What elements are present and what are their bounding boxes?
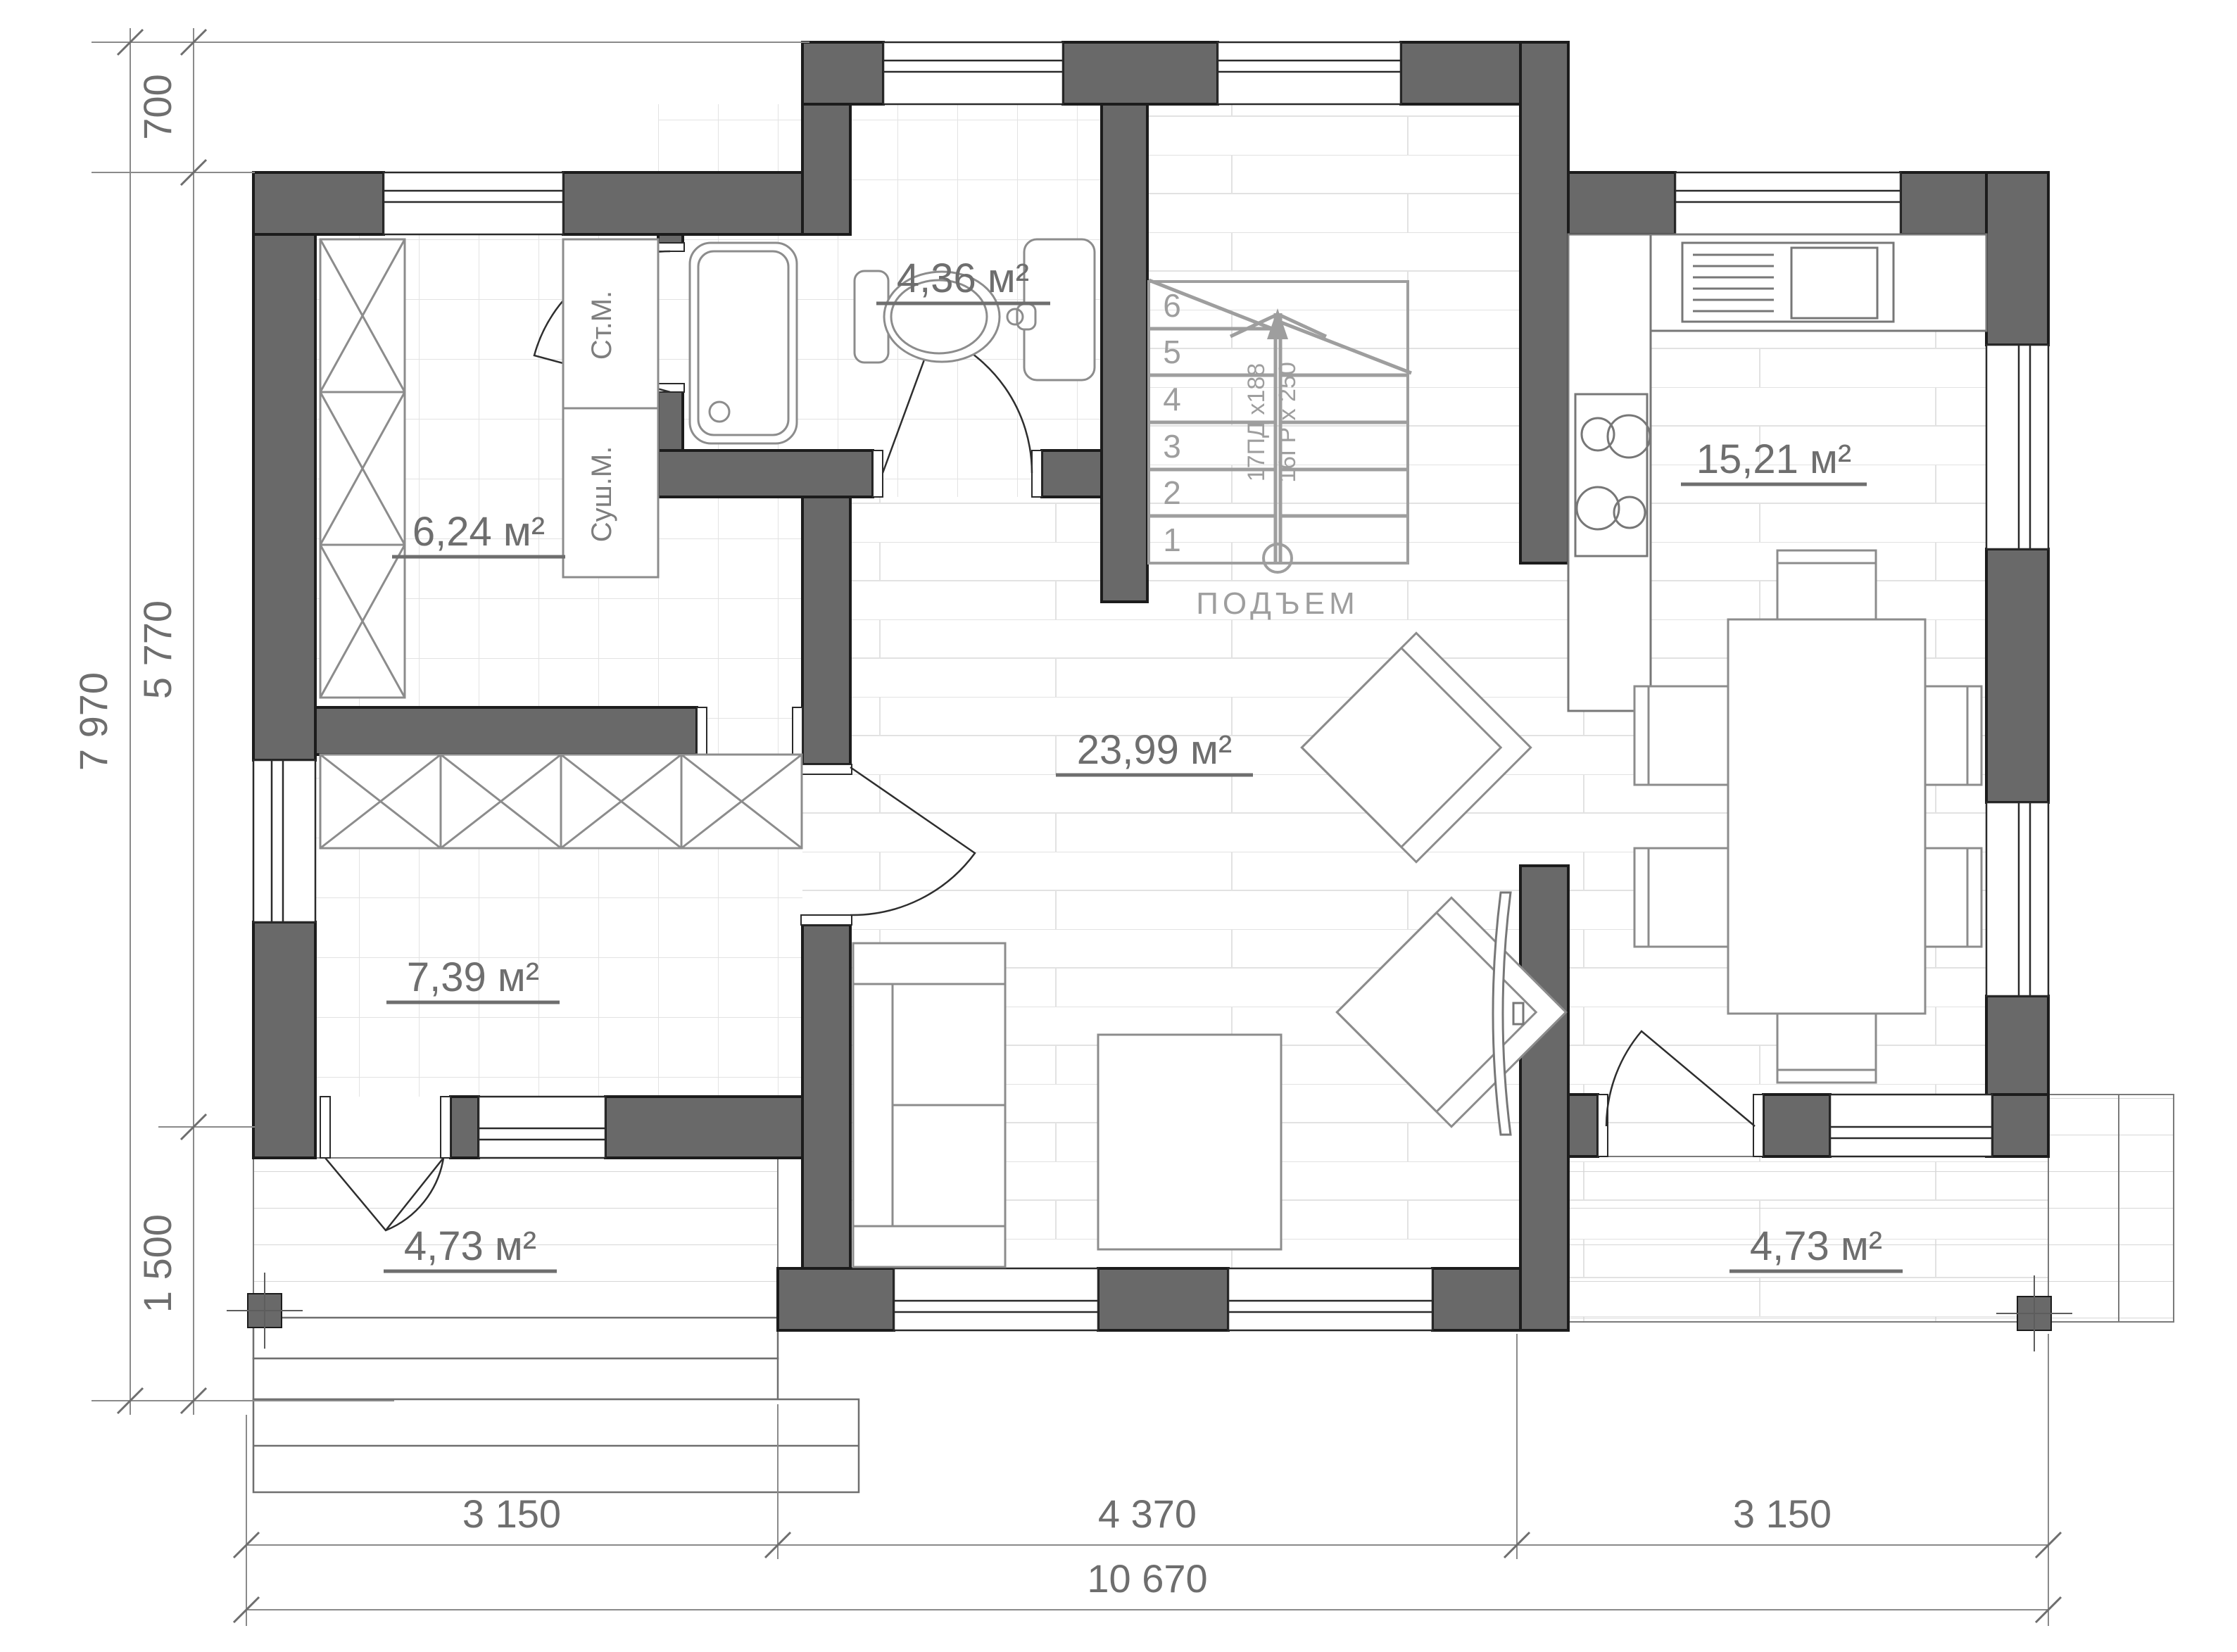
wall-block-top-c xyxy=(1401,42,1520,104)
stair-step-6: 6 xyxy=(1163,287,1181,324)
window-hall-left xyxy=(253,760,315,922)
dining-table xyxy=(1728,619,1925,1014)
dim-bottom-center: 4 370 xyxy=(1098,1492,1197,1536)
label-bathroom: 4,36 м² xyxy=(897,256,1029,301)
bathtub xyxy=(690,243,797,443)
window-stairs-top xyxy=(1218,42,1401,104)
stair-step-1: 1 xyxy=(1163,522,1181,558)
stair-note-treads: 16ГР х 250 xyxy=(1274,362,1301,483)
outside-patch-top-right xyxy=(1568,42,2048,172)
wall-block-top-a xyxy=(802,42,883,104)
dim-vertical-total: 7 970 xyxy=(71,672,115,771)
sofa xyxy=(853,943,1005,1267)
label-living: 23,99 м² xyxy=(1077,727,1232,773)
label-hall: 7,39 м² xyxy=(407,954,539,1000)
wall-left-lower xyxy=(253,922,315,1158)
wardrobe-laundry xyxy=(320,239,405,698)
wall-top-left-b xyxy=(563,172,802,234)
dim-bottom-total: 10 670 xyxy=(1087,1556,1207,1601)
floor-plan-drawing: 1 2 3 4 5 6 17ПД х188 16ГР х 250 ПОДЪЕМ … xyxy=(0,0,2237,1652)
label-terrace-right: 4,73 м² xyxy=(1750,1223,1882,1269)
wall-right-a xyxy=(1986,172,2048,345)
wall-spine-mid xyxy=(802,497,850,764)
dim-vertical-main: 5 770 xyxy=(135,600,179,699)
dim-bottom-left: 3 150 xyxy=(462,1492,561,1536)
stair-step-4: 4 xyxy=(1163,381,1181,417)
wall-block-top-b xyxy=(1063,42,1218,104)
wall-bathroom-south-a xyxy=(658,450,873,497)
window-bathroom-top xyxy=(883,42,1063,104)
wall-dining-south-c xyxy=(1992,1095,2048,1156)
window-dining-right-2 xyxy=(1986,802,2048,996)
wall-living-right-stub xyxy=(1520,866,1568,1330)
wall-top-left-a xyxy=(253,172,384,234)
floor-plan-page: 1 2 3 4 5 6 17ПД х188 16ГР х 250 ПОДЪЕМ … xyxy=(0,0,2237,1652)
label-laundry: 6,24 м² xyxy=(412,509,545,555)
wall-hall-south-a xyxy=(450,1097,479,1158)
wall-bathroom-right xyxy=(1102,104,1147,602)
wall-kitchen-top-a xyxy=(1568,172,1675,234)
label-kitchen: 15,21 м² xyxy=(1696,436,1851,482)
wall-spine-low xyxy=(802,925,850,1268)
stove xyxy=(1575,394,1650,556)
wall-dining-south-b xyxy=(1763,1095,1830,1156)
dim-bottom-right: 3 150 xyxy=(1733,1492,1832,1536)
window-kitchen-top xyxy=(1675,172,1901,234)
wall-laundry-hall-partition xyxy=(315,707,697,755)
window-hall-south xyxy=(479,1097,605,1158)
terrace-left-steps xyxy=(253,1318,859,1492)
wall-left-upper xyxy=(253,172,315,760)
dim-vertical-terrace: 1 500 xyxy=(135,1214,179,1313)
stair-note-risers: 17ПД х188 xyxy=(1243,363,1270,481)
wall-right-b xyxy=(1986,549,2048,802)
wall-dining-south-a xyxy=(1568,1095,1598,1156)
label-terrace-left: 4,73 м² xyxy=(404,1223,536,1269)
terrace-right-side-strip xyxy=(2048,1095,2174,1322)
wall-living-south-b xyxy=(1098,1268,1228,1330)
window-living-south-2 xyxy=(1228,1268,1432,1330)
window-laundry-top xyxy=(384,172,563,234)
coffee-table xyxy=(1098,1035,1281,1249)
wardrobe-hall xyxy=(320,755,802,848)
wall-stairs-kitchen xyxy=(1520,42,1568,563)
window-dining-right-1 xyxy=(1986,345,2048,549)
wall-living-south-a xyxy=(778,1268,894,1330)
label-washing-machine: Ст.М. xyxy=(586,291,617,360)
window-living-south-1 xyxy=(894,1268,1098,1330)
window-dining-south xyxy=(1830,1095,1992,1156)
dim-vertical-top-offset: 700 xyxy=(135,74,179,139)
stair-direction-label: ПОДЪЕМ xyxy=(1196,586,1359,621)
label-dryer: Суш.М. xyxy=(586,446,617,543)
wall-hall-south-b xyxy=(605,1097,802,1158)
stair-step-3: 3 xyxy=(1163,428,1181,465)
stair-step-2: 2 xyxy=(1163,474,1181,511)
stair-step-5: 5 xyxy=(1163,334,1181,370)
